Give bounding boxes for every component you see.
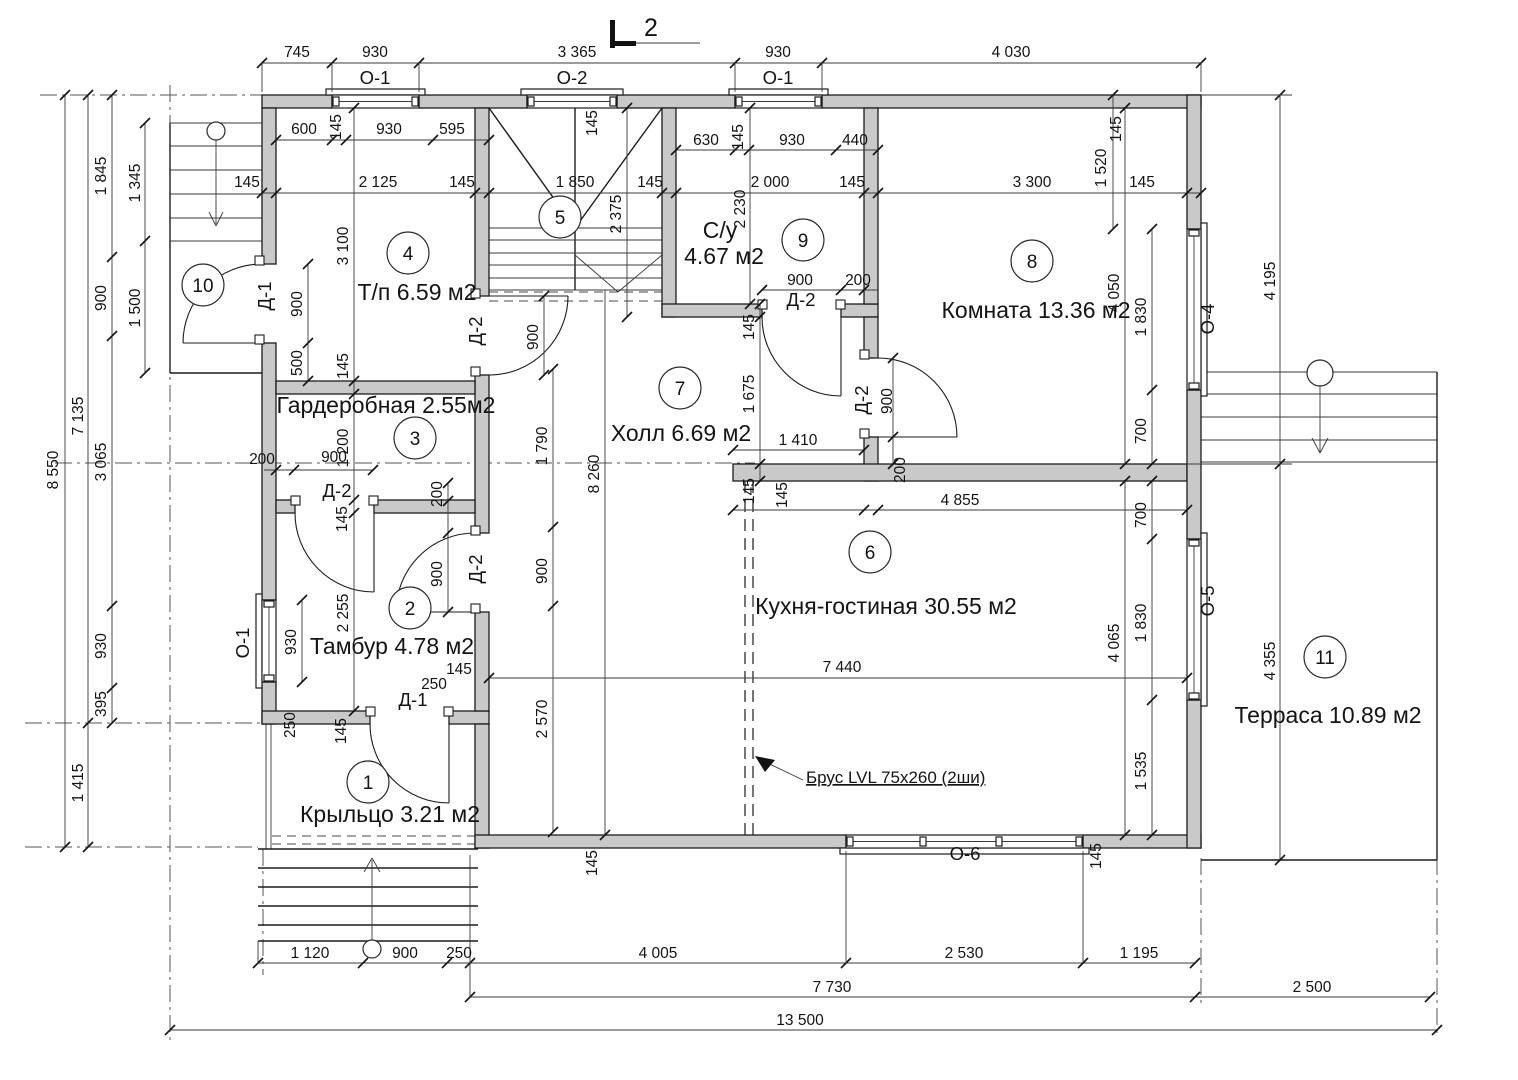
label-openings-windows-o5: О-5 xyxy=(1197,586,1218,617)
label-dims-left_1500: 1 500 xyxy=(127,288,144,327)
label-dims-bot_4005: 4 005 xyxy=(639,945,678,962)
label-dims-gard_200b: 200 xyxy=(429,481,446,507)
label-dims-suw_145: 145 xyxy=(730,124,747,150)
label-drawing-section_label: 2 xyxy=(644,14,658,42)
label-rooms-r9-label_line1: С/у xyxy=(703,217,738,243)
room-number-r9: 9 xyxy=(798,231,809,252)
label-dims-tp_500: 500 xyxy=(289,350,306,376)
label-dims-hall_1410: 1 410 xyxy=(779,432,818,449)
label-dims-main_145l: 145 xyxy=(234,174,260,191)
label-openings-windows-o6: О-6 xyxy=(950,843,981,864)
label-dims-room8_1830: 1 830 xyxy=(1133,297,1150,336)
label-dims-porch_145: 145 xyxy=(333,718,350,744)
label-dims-right_4355: 4 355 xyxy=(1262,642,1279,681)
room-number-r5: 5 xyxy=(555,208,566,229)
label-rooms-r3-label: Гардеробная 2.55м2 xyxy=(277,392,496,418)
label-dims-hall_1790: 1 790 xyxy=(534,426,551,465)
label-openings-doors-d2_room8: Д-2 xyxy=(851,386,872,415)
label-dims-jamb_o2: 145 xyxy=(584,110,601,136)
label-openings-windows-o2_top: О-2 xyxy=(557,67,588,88)
label-dims-kit_1830: 1 830 xyxy=(1133,603,1150,642)
label-rooms-r9-label_line2: 4.67 м2 xyxy=(684,243,764,269)
label-dims-gard_900b: 900 xyxy=(429,561,446,587)
label-openings-doors-d1_porch: Д-1 xyxy=(399,689,428,710)
label-dims-tp_3100: 3 100 xyxy=(335,226,352,265)
label-openings-windows-o1_top2: О-1 xyxy=(763,67,794,88)
label-dims-tpw_930: 930 xyxy=(376,121,402,138)
label-dims-main_1520: 1 520 xyxy=(1093,148,1110,187)
label-dims-top_930a: 930 xyxy=(362,44,388,61)
label-dims-su_200: 200 xyxy=(845,272,871,289)
label-dims-top_4030: 4 030 xyxy=(992,44,1031,61)
label-dims-bot_1195: 1 195 xyxy=(1120,945,1159,962)
label-dims-kit_7440: 7 440 xyxy=(823,659,862,676)
label-rooms-r2-label: Тамбур 4.78 м2 xyxy=(310,633,474,659)
text-labels: 7459303 3659304 030О-1О-2О-1260014593059… xyxy=(45,14,1422,1029)
label-drawing-beam_note: Брус LVL 75x260 (2ши) xyxy=(806,768,985,787)
label-dims-main_145b: 145 xyxy=(637,174,663,191)
label-openings-windows-o1_top: О-1 xyxy=(360,67,391,88)
label-dims-tam_145: 145 xyxy=(446,661,472,678)
label-dims-tpw_600: 600 xyxy=(291,121,317,138)
label-dims-hall_2570: 2 570 xyxy=(534,699,551,738)
label-dims-su_900: 900 xyxy=(787,272,813,289)
label-dims-tam_930: 930 xyxy=(283,629,300,655)
label-dims-hall_900: 900 xyxy=(534,558,551,584)
room-number-r4: 4 xyxy=(403,244,414,265)
room-number-r8: 8 xyxy=(1027,252,1038,273)
room-number-r11: 11 xyxy=(1315,648,1335,669)
label-dims-porch_250: 250 xyxy=(282,712,299,738)
label-dims-bot_2500: 2 500 xyxy=(1293,979,1332,996)
label-dims-main_145c: 145 xyxy=(839,174,865,191)
label-dims-top_745: 745 xyxy=(284,44,310,61)
room-number-r10: 10 xyxy=(192,276,213,297)
label-dims-kit_4065: 4 065 xyxy=(1106,624,1123,663)
label-dims-main_145d: 145 xyxy=(1129,174,1155,191)
label-dims-kit_145c: 145 xyxy=(584,850,601,876)
room-number-r7: 7 xyxy=(675,379,686,400)
label-dims-left_3065: 3 065 xyxy=(93,443,110,482)
label-dims-kit_1535: 1 535 xyxy=(1133,752,1150,791)
label-dims-left_1415: 1 415 xyxy=(70,764,87,803)
label-dims-wall_right_145: 145 xyxy=(1108,116,1125,142)
label-dims-hall_145: 145 xyxy=(741,478,758,504)
label-dims-suw_930: 930 xyxy=(779,132,805,149)
label-dims-room8_700: 700 xyxy=(1133,418,1150,444)
label-dims-top_930b: 930 xyxy=(765,44,791,61)
label-dims-right_4195: 4 195 xyxy=(1262,262,1279,301)
label-dims-left_930: 930 xyxy=(93,633,110,659)
label-dims-gard_200: 200 xyxy=(249,451,275,468)
label-dims-bot_7730: 7 730 xyxy=(813,979,852,996)
label-dims-room8_900: 900 xyxy=(879,388,896,414)
label-dims-kit_4855: 4 855 xyxy=(941,492,980,509)
label-dims-left_7135: 7 135 xyxy=(70,397,87,436)
label-openings-windows-o1_left: О-1 xyxy=(232,628,253,659)
label-dims-left_1845: 1 845 xyxy=(93,157,110,196)
label-dims-hall_8260: 8 260 xyxy=(586,454,603,493)
label-dims-bot_13500: 13 500 xyxy=(776,1012,824,1029)
label-dims-main_2000: 2 000 xyxy=(751,174,790,191)
label-dims-main_2125: 2 125 xyxy=(359,174,398,191)
label-dims-tp_145: 145 xyxy=(335,353,352,379)
label-dims-tp_900: 900 xyxy=(289,291,306,317)
label-rooms-r6-label: Кухня-гостиная 30.55 м2 xyxy=(755,593,1017,619)
room-number-r6: 6 xyxy=(865,543,876,564)
label-dims-main_1850: 1 850 xyxy=(556,174,595,191)
label-dims-hall_200: 200 xyxy=(892,457,909,483)
label-openings-doors-d2_su: Д-2 xyxy=(787,289,816,310)
label-dims-top_3365: 3 365 xyxy=(558,44,597,61)
label-dims-bot_900: 900 xyxy=(392,945,418,962)
label-dims-stair_900: 900 xyxy=(525,324,542,350)
label-openings-doors-d2_tp: Д-2 xyxy=(465,317,486,346)
label-rooms-r7-label: Холл 6.69 м2 xyxy=(611,420,751,446)
room-number-r2: 2 xyxy=(405,599,416,620)
label-rooms-r11-label: Терраса 10.89 м2 xyxy=(1234,702,1421,728)
label-dims-bot_250: 250 xyxy=(446,945,472,962)
label-dims-gard_1200: 1 200 xyxy=(335,428,352,467)
label-openings-doors-d1_room10: Д-1 xyxy=(254,282,275,311)
label-dims-tam_2255: 2 255 xyxy=(335,594,352,633)
label-dims-suw_440: 440 xyxy=(842,132,868,149)
label-openings-windows-o4: О-4 xyxy=(1197,304,1218,335)
label-dims-kit_145: 145 xyxy=(774,482,791,508)
label-dims-stair_2375: 2 375 xyxy=(608,195,625,234)
floor-plan-page: 1234567891011 7459303 3659304 030О-1О-2О… xyxy=(0,0,1518,1080)
label-dims-suw_630: 630 xyxy=(693,132,719,149)
label-dims-left_8550: 8 550 xyxy=(45,450,62,489)
label-dims-main_145a: 145 xyxy=(449,174,475,191)
label-rooms-r8-label: Комната 13.36 м2 xyxy=(942,297,1131,323)
label-openings-doors-d2_gard: Д-2 xyxy=(323,480,352,501)
label-dims-bot_2530: 2 530 xyxy=(945,945,984,962)
room-number-r3: 3 xyxy=(410,429,421,450)
label-dims-left_900: 900 xyxy=(93,285,110,311)
label-dims-kit_145b: 145 xyxy=(1088,843,1105,869)
label-openings-doors-d2_tambur: Д-2 xyxy=(465,555,486,584)
room-number-r1: 1 xyxy=(363,773,374,794)
label-dims-gard_145: 145 xyxy=(334,506,351,532)
label-dims-kit_700: 700 xyxy=(1133,502,1150,528)
floor-plan-drawing: 1234567891011 7459303 3659304 030О-1О-2О… xyxy=(0,0,1518,1080)
label-dims-tpw_145: 145 xyxy=(328,114,345,140)
label-dims-bot_1120: 1 120 xyxy=(291,945,330,962)
label-rooms-r4-label: Т/п 6.59 м2 xyxy=(357,279,476,305)
label-rooms-r1-label: Крыльцо 3.21 м2 xyxy=(300,801,480,827)
label-dims-left_395: 395 xyxy=(93,691,110,717)
label-dims-su_1675: 1 675 xyxy=(741,375,758,414)
label-dims-tpw_595: 595 xyxy=(439,121,465,138)
label-dims-main_3300: 3 300 xyxy=(1013,174,1052,191)
label-dims-left_1345: 1 345 xyxy=(127,164,144,203)
label-dims-su_145: 145 xyxy=(741,314,758,340)
